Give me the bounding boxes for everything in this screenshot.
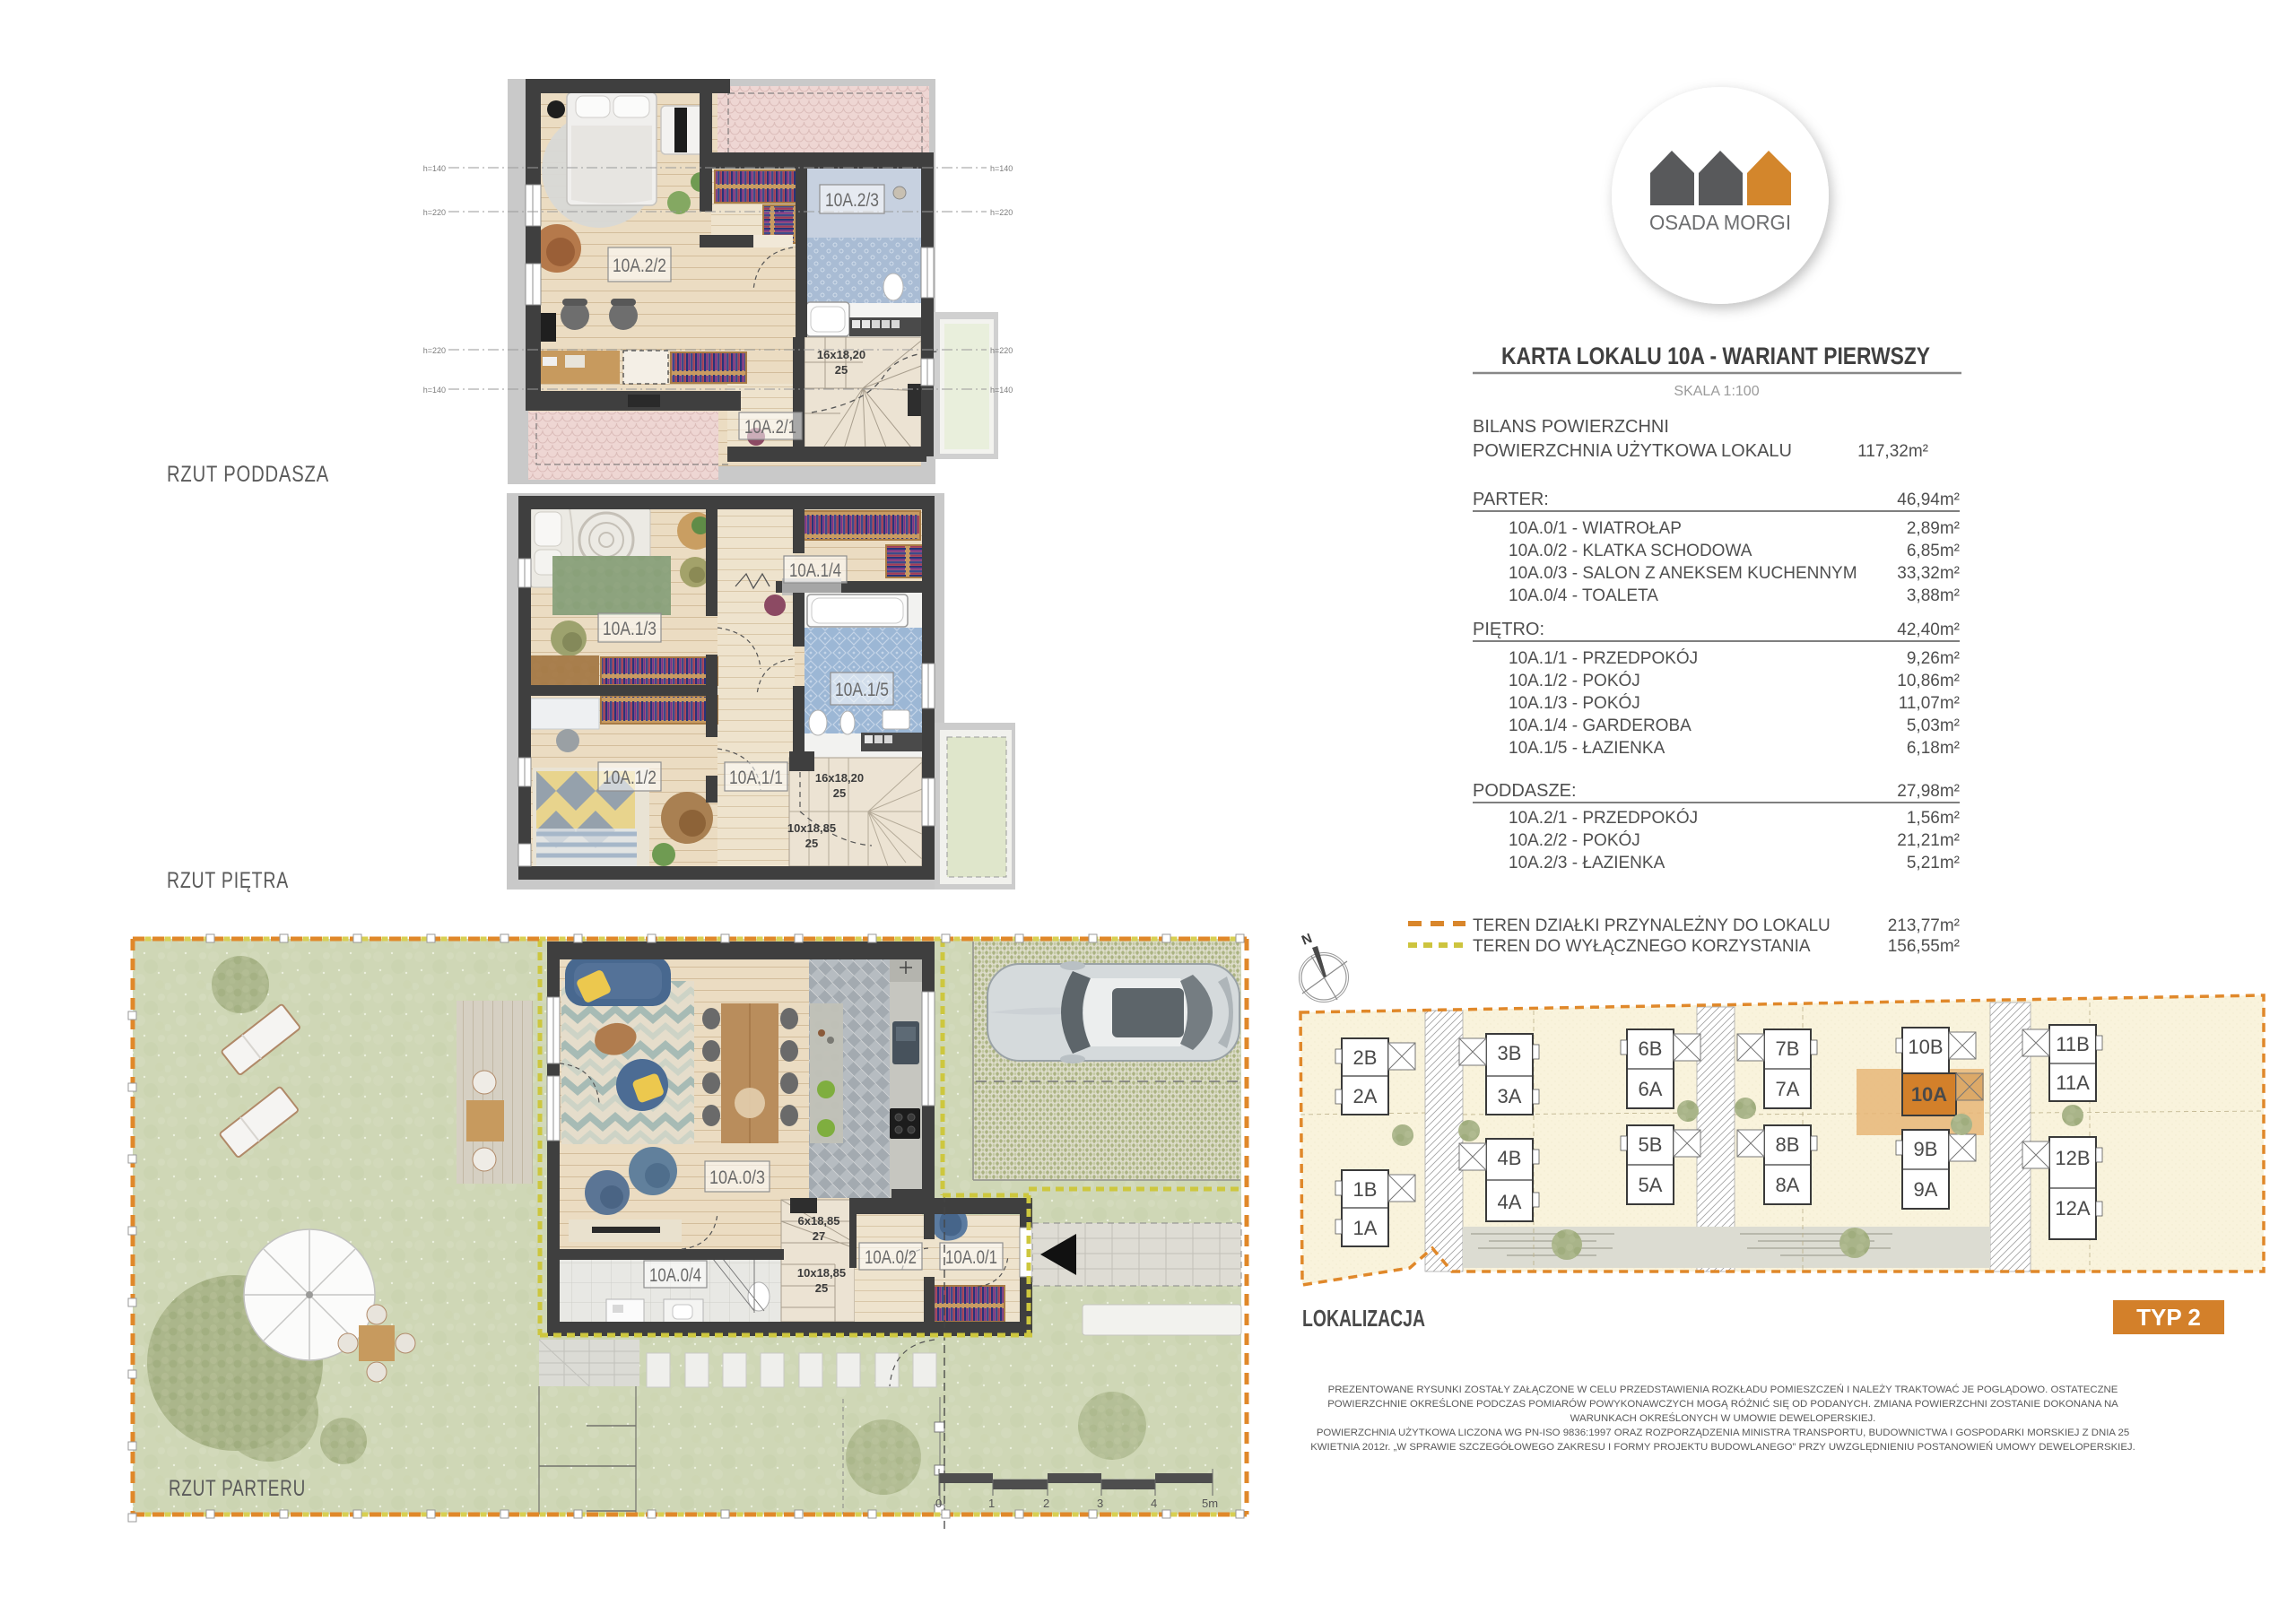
svg-text:27: 27 [813, 1229, 825, 1243]
svg-text:27,98m²: 27,98m² [1897, 782, 1960, 801]
svg-text:4B: 4B [1498, 1147, 1522, 1169]
svg-text:LOKALIZACJA: LOKALIZACJA [1302, 1305, 1425, 1332]
svg-text:8A: 8A [1776, 1174, 1800, 1196]
svg-text:42,40m²: 42,40m² [1897, 621, 1960, 639]
svg-text:PARTER:: PARTER: [1473, 490, 1549, 509]
svg-text:10A.1/5: 10A.1/5 [835, 680, 889, 700]
svg-text:RZUT PODDASZA: RZUT PODDASZA [167, 462, 329, 487]
svg-text:0: 0 [935, 1497, 942, 1510]
svg-text:10A.2/2 - POKÓJ: 10A.2/2 - POKÓJ [1509, 830, 1640, 850]
svg-text:10A.0/1: 10A.0/1 [945, 1247, 997, 1268]
svg-text:21,21m²: 21,21m² [1897, 831, 1960, 850]
svg-text:PREZENTOWANE RYSUNKI ZOSTAŁY Z: PREZENTOWANE RYSUNKI ZOSTAŁY ZAŁĄCZONE W… [1328, 1384, 2118, 1395]
svg-text:1A: 1A [1353, 1217, 1378, 1239]
svg-text:RZUT PIĘTRA: RZUT PIĘTRA [167, 868, 289, 893]
svg-text:TYP 2: TYP 2 [2136, 1304, 2201, 1331]
svg-text:5A: 5A [1639, 1174, 1663, 1196]
svg-text:h=140: h=140 [423, 386, 446, 395]
svg-text:10A.2/3: 10A.2/3 [825, 190, 879, 211]
svg-text:TEREN DO WYŁĄCZNEGO KORZYSTANI: TEREN DO WYŁĄCZNEGO KORZYSTANIA [1473, 937, 1811, 956]
svg-text:11A: 11A [2056, 1072, 2090, 1094]
svg-text:12A: 12A [2055, 1197, 2090, 1219]
svg-text:2B: 2B [1353, 1046, 1378, 1069]
svg-text:10A.0/2 - KLATKA SCHODOWA: 10A.0/2 - KLATKA SCHODOWA [1509, 542, 1752, 560]
svg-text:POWIERZCHNIE OKREŚLONE PODCZAS: POWIERZCHNIE OKREŚLONE PODCZAS POMIARÓW … [1327, 1398, 2118, 1410]
svg-text:6,18m²: 6,18m² [1907, 739, 1960, 758]
svg-text:6x18,85: 6x18,85 [798, 1214, 840, 1228]
svg-text:3,88m²: 3,88m² [1907, 586, 1960, 605]
svg-text:TEREN DZIAŁKI PRZYNALEŻNY DO L: TEREN DZIAŁKI PRZYNALEŻNY DO LOKALU [1473, 916, 1831, 935]
svg-text:25: 25 [835, 363, 848, 377]
svg-text:3: 3 [1097, 1497, 1103, 1510]
svg-text:10x18,85: 10x18,85 [787, 821, 836, 835]
svg-text:10A.1/5 - ŁAZIENKA: 10A.1/5 - ŁAZIENKA [1509, 739, 1665, 758]
svg-text:25: 25 [815, 1281, 828, 1295]
svg-text:h=220: h=220 [990, 208, 1013, 217]
svg-text:117,32m²: 117,32m² [1857, 442, 1928, 461]
svg-text:16x18,20: 16x18,20 [815, 771, 864, 785]
svg-text:RZUT PARTERU: RZUT PARTERU [169, 1476, 306, 1501]
svg-text:7B: 7B [1776, 1037, 1800, 1060]
svg-text:PODDASZE:: PODDASZE: [1473, 781, 1577, 801]
svg-text:10A.1/4: 10A.1/4 [789, 560, 841, 581]
svg-text:10,86m²: 10,86m² [1897, 672, 1960, 690]
svg-text:6B: 6B [1639, 1037, 1663, 1060]
svg-text:10A.0/3: 10A.0/3 [709, 1167, 765, 1188]
svg-text:KWIETNIA 2012r. „W SPRAWIE S: KWIETNIA 2012r. „W SPRAWIE SZCZEGÓŁOWEGO… [1310, 1441, 2135, 1453]
svg-text:5B: 5B [1639, 1133, 1663, 1156]
svg-text:10A.0/1 - WIATROŁAP: 10A.0/1 - WIATROŁAP [1509, 519, 1682, 538]
svg-text:25: 25 [833, 786, 846, 800]
svg-text:h=140: h=140 [423, 164, 446, 173]
svg-text:10A.0/4: 10A.0/4 [649, 1265, 701, 1286]
svg-text:h=220: h=220 [423, 346, 446, 355]
svg-text:OSADA MORGI: OSADA MORGI [1649, 211, 1791, 234]
svg-text:PIĘTRO:: PIĘTRO: [1473, 620, 1544, 639]
svg-text:SKALA 1:100: SKALA 1:100 [1674, 384, 1759, 399]
svg-text:10A.2/2: 10A.2/2 [613, 256, 666, 276]
svg-text:10A.1/1 - PRZEDPOKÓJ: 10A.1/1 - PRZEDPOKÓJ [1509, 648, 1698, 668]
svg-text:9A: 9A [1914, 1178, 1938, 1201]
svg-text:11B: 11B [2056, 1033, 2090, 1055]
svg-text:3A: 3A [1498, 1085, 1522, 1107]
svg-text:11,07m²: 11,07m² [1899, 694, 1960, 713]
svg-text:POWIERZCHNIA UŻYTKOWA LICZONA: POWIERZCHNIA UŻYTKOWA LICZONA WG PN-ISO … [1317, 1427, 2129, 1438]
svg-text:2: 2 [1043, 1497, 1049, 1510]
svg-text:9B: 9B [1914, 1138, 1938, 1160]
svg-text:10A.1/2: 10A.1/2 [603, 768, 657, 788]
svg-text:10A.1/1: 10A.1/1 [729, 768, 783, 788]
svg-text:KARTA LOKALU 10A - WARIANT PIE: KARTA LOKALU 10A - WARIANT PIERWSZY [1501, 343, 1930, 369]
svg-text:h=220: h=220 [990, 346, 1013, 355]
svg-text:10A.2/3 - ŁAZIENKA: 10A.2/3 - ŁAZIENKA [1509, 854, 1665, 872]
svg-text:10A: 10A [1911, 1083, 1947, 1106]
svg-text:33,32m²: 33,32m² [1897, 564, 1960, 583]
svg-text:3B: 3B [1498, 1042, 1522, 1064]
svg-text:5,03m²: 5,03m² [1907, 716, 1960, 735]
svg-text:1B: 1B [1353, 1178, 1378, 1201]
svg-text:1,56m²: 1,56m² [1907, 809, 1960, 828]
svg-text:25: 25 [805, 837, 818, 850]
svg-text:10A.0/3 - SALON Z ANEKSEM KUCH: 10A.0/3 - SALON Z ANEKSEM KUCHENNYM [1509, 564, 1857, 583]
svg-text:5m: 5m [1202, 1497, 1218, 1510]
svg-text:9,26m²: 9,26m² [1907, 649, 1960, 668]
svg-text:10A.0/4 - TOALETA: 10A.0/4 - TOALETA [1509, 586, 1658, 605]
svg-text:WARUNKACH OKREŚLONYCH W UMOWIE: WARUNKACH OKREŚLONYCH W UMOWIE DEWELOPER… [1570, 1412, 1876, 1424]
svg-text:6A: 6A [1639, 1078, 1663, 1100]
svg-text:BILANS POWIERZCHNI: BILANS POWIERZCHNI [1473, 417, 1669, 437]
svg-text:4A: 4A [1498, 1191, 1522, 1213]
svg-text:POWIERZCHNIA UŻYTKOWA LOKALU: POWIERZCHNIA UŻYTKOWA LOKALU [1473, 440, 1792, 461]
svg-text:8B: 8B [1776, 1133, 1800, 1156]
svg-text:10x18,85: 10x18,85 [797, 1266, 846, 1280]
svg-text:10A.2/1: 10A.2/1 [744, 417, 796, 438]
svg-text:12B: 12B [2055, 1147, 2090, 1169]
svg-text:7A: 7A [1776, 1078, 1800, 1100]
svg-text:2A: 2A [1353, 1085, 1378, 1107]
svg-text:10B: 10B [1908, 1036, 1943, 1058]
svg-text:4: 4 [1151, 1497, 1157, 1510]
svg-text:10A.0/2: 10A.0/2 [865, 1247, 917, 1268]
svg-text:10A.1/4 - GARDEROBA: 10A.1/4 - GARDEROBA [1509, 716, 1692, 735]
svg-text:10A.2/1 - PRZEDPOKÓJ: 10A.2/1 - PRZEDPOKÓJ [1509, 808, 1698, 828]
svg-text:1: 1 [988, 1497, 995, 1510]
svg-text:h=220: h=220 [423, 208, 446, 217]
svg-text:10A.1/3: 10A.1/3 [603, 619, 657, 639]
svg-text:10A.1/2 - POKÓJ: 10A.1/2 - POKÓJ [1509, 671, 1640, 690]
svg-text:213,77m²: 213,77m² [1888, 916, 1960, 935]
svg-text:5,21m²: 5,21m² [1907, 854, 1960, 872]
svg-text:h=140: h=140 [990, 386, 1013, 395]
svg-text:6,85m²: 6,85m² [1907, 542, 1960, 560]
svg-text:46,94m²: 46,94m² [1897, 490, 1960, 509]
svg-text:156,55m²: 156,55m² [1888, 937, 1960, 956]
svg-text:10A.1/3 - POKÓJ: 10A.1/3 - POKÓJ [1509, 693, 1640, 713]
svg-text:2,89m²: 2,89m² [1907, 519, 1960, 538]
svg-text:h=140: h=140 [990, 164, 1013, 173]
